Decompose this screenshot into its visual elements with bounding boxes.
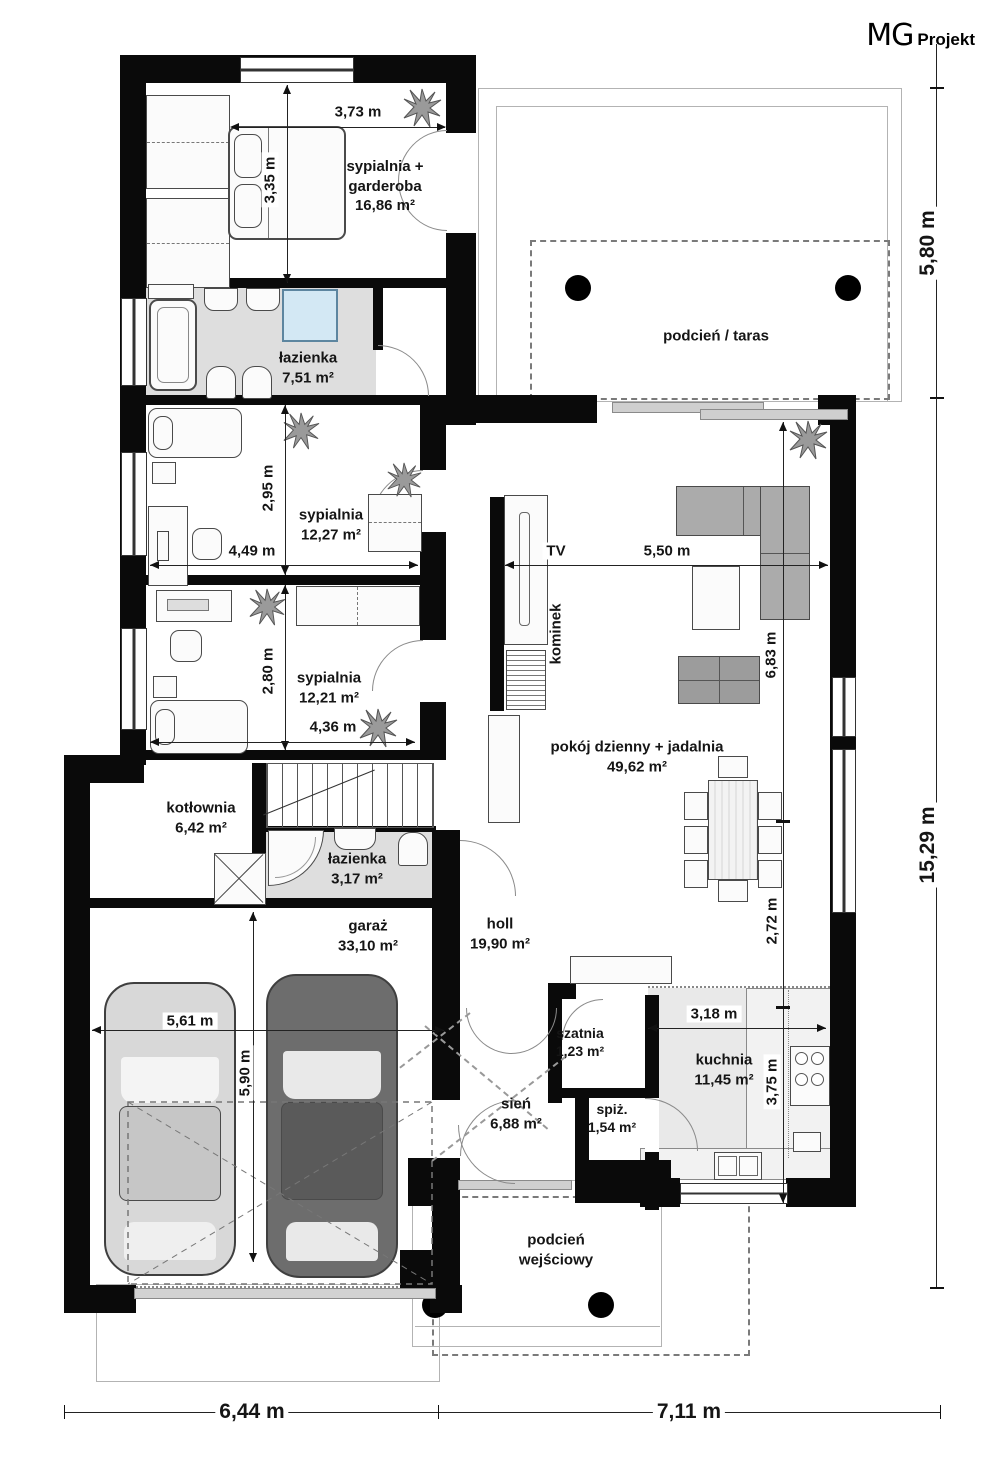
room-label-entrance-porch: podcień wejściowy bbox=[519, 1231, 593, 1270]
room-name: podcień / taras bbox=[663, 327, 769, 344]
dim-arrow bbox=[249, 912, 257, 921]
room-area: 12,21 m² bbox=[297, 688, 361, 708]
dim-arrow bbox=[435, 1026, 444, 1034]
stairs-break-line bbox=[263, 770, 375, 816]
sink-bowl bbox=[718, 1156, 737, 1176]
dim-label: 5,80 m bbox=[916, 206, 940, 279]
window bbox=[121, 452, 147, 556]
dim-label: 15,29 m bbox=[916, 802, 940, 887]
dim-tick bbox=[930, 397, 944, 399]
wardrobe-shelves bbox=[146, 198, 230, 288]
porch-step-line bbox=[415, 1326, 660, 1327]
room-name: garaż bbox=[338, 917, 398, 937]
room-area: 16,86 m² bbox=[346, 196, 423, 216]
sofa-seam bbox=[761, 553, 809, 554]
monitor bbox=[157, 531, 169, 561]
wall bbox=[432, 830, 460, 1285]
wall bbox=[556, 983, 576, 999]
dim-label: 7,11 m bbox=[653, 1400, 725, 1424]
room-name: sypialnia + bbox=[346, 157, 423, 177]
room-label-master-bedroom: sypialnia + garderoba 16,86 m² bbox=[346, 157, 423, 216]
plant-icon bbox=[386, 462, 422, 498]
tv-label: TV bbox=[542, 543, 569, 560]
bidet bbox=[242, 366, 272, 399]
room-area: 1,54 m² bbox=[588, 1118, 636, 1136]
dim-line bbox=[783, 422, 784, 1203]
dresser bbox=[156, 590, 232, 622]
entrance-door-panel bbox=[458, 1180, 572, 1190]
dim-arrow bbox=[406, 738, 415, 746]
dim-line bbox=[505, 565, 828, 566]
door-arc bbox=[460, 840, 516, 896]
room-name: holl bbox=[470, 915, 530, 935]
dim-arrow bbox=[779, 1194, 787, 1203]
dim-line bbox=[150, 742, 415, 743]
dim-arrow bbox=[505, 561, 514, 569]
room-name: sień bbox=[490, 1095, 542, 1115]
room-label-vestibule: sień 6,88 m² bbox=[490, 1095, 542, 1134]
nightstand bbox=[152, 462, 176, 484]
dim-line bbox=[285, 405, 286, 575]
tv-cabinet bbox=[678, 656, 760, 704]
brand-logo-mg: MG bbox=[866, 18, 913, 53]
dim-label: 6,83 m bbox=[763, 628, 780, 683]
room-label-hall: holl 19,90 m² bbox=[470, 915, 530, 954]
fireplace-label: kominek bbox=[546, 604, 566, 665]
dim-line bbox=[92, 1030, 444, 1031]
brand-logo-projekt: Projekt bbox=[917, 30, 975, 49]
counter-depth-line bbox=[788, 990, 789, 1158]
dim-arrow bbox=[281, 566, 289, 575]
window bbox=[121, 298, 147, 386]
hall-sideboard bbox=[570, 956, 672, 984]
wall bbox=[786, 1178, 856, 1207]
pillow bbox=[234, 184, 262, 228]
room-area: 7,51 m² bbox=[279, 368, 337, 388]
wall bbox=[490, 497, 504, 711]
terrace-roof-dashed bbox=[530, 240, 890, 400]
dim-line bbox=[648, 1028, 826, 1029]
room-name: wejściowy bbox=[519, 1250, 593, 1270]
wall bbox=[446, 55, 476, 133]
double-sink bbox=[714, 1152, 762, 1180]
wall bbox=[64, 1285, 136, 1313]
wall bbox=[64, 755, 90, 1290]
door-arc bbox=[466, 1008, 512, 1054]
room-name: podcień bbox=[519, 1231, 593, 1251]
room-area: 11,45 m² bbox=[694, 1070, 753, 1090]
hall-closet bbox=[488, 715, 520, 823]
room-area: 19,90 m² bbox=[470, 934, 530, 954]
window bbox=[680, 1183, 788, 1204]
cabinet-seam bbox=[679, 680, 759, 681]
dim-label: 3,35 m bbox=[262, 153, 279, 208]
dim-tick bbox=[438, 1405, 439, 1419]
dim-label: 2,72 m bbox=[764, 894, 781, 949]
dim-line bbox=[232, 127, 445, 128]
single-bed bbox=[150, 700, 248, 754]
dim-label: 5,50 m bbox=[640, 543, 695, 560]
dim-leader-line bbox=[936, 44, 937, 88]
dim-arrow bbox=[150, 738, 159, 746]
dim-arrow bbox=[437, 123, 446, 131]
room-label-bathroom-small: łazienka 3,17 m² bbox=[328, 850, 386, 889]
room-area: 6,88 m² bbox=[490, 1114, 542, 1134]
room-name: sypialnia bbox=[299, 506, 363, 526]
room-label-living-dining: pokój dzienny + jadalnia 49,62 m² bbox=[551, 738, 724, 777]
room-name: spiż. bbox=[588, 1100, 636, 1118]
shower bbox=[282, 289, 338, 342]
wall bbox=[440, 395, 597, 423]
dim-arrow bbox=[283, 85, 291, 94]
desk bbox=[148, 506, 188, 586]
dim-tick bbox=[930, 87, 944, 89]
porch-roof-dashed bbox=[432, 1196, 750, 1356]
burner bbox=[795, 1073, 808, 1086]
room-area: 6,42 m² bbox=[166, 818, 235, 838]
garage-door-swing-zone bbox=[126, 1100, 434, 1286]
room-label-cloakroom: szatnia 1,23 m² bbox=[556, 1024, 604, 1060]
dining-chair bbox=[684, 792, 708, 820]
dining-chair bbox=[758, 860, 782, 888]
room-name: garderoba bbox=[346, 176, 423, 196]
kitchen-open-boundary bbox=[648, 986, 830, 988]
single-bed bbox=[148, 408, 242, 458]
dim-line bbox=[150, 565, 418, 566]
shelf-line bbox=[147, 142, 229, 143]
room-label-kitchen: kuchnia 11,45 m² bbox=[694, 1051, 753, 1090]
dishwasher bbox=[793, 1132, 821, 1152]
room-name: kotłownia bbox=[166, 799, 235, 819]
dim-tick bbox=[64, 1405, 65, 1419]
toilet bbox=[206, 366, 236, 399]
car-windshield bbox=[121, 1057, 218, 1103]
toilet bbox=[398, 832, 428, 866]
burner bbox=[811, 1073, 824, 1086]
fireplace-slot bbox=[519, 512, 530, 626]
wall bbox=[560, 1088, 645, 1098]
sink bbox=[204, 288, 238, 311]
chair bbox=[170, 630, 202, 662]
dim-label: 3,75 m bbox=[764, 1055, 781, 1110]
dim-arrow bbox=[92, 1026, 101, 1034]
room-name: łazienka bbox=[279, 349, 337, 369]
room-label-bedroom-3: sypialnia 12,21 m² bbox=[297, 669, 361, 708]
sink bbox=[334, 828, 376, 850]
dim-label: 6,44 m bbox=[215, 1400, 288, 1424]
dim-tick bbox=[930, 1287, 944, 1289]
room-label-bedroom-2: sypialnia 12,27 m² bbox=[299, 506, 363, 545]
room-name: pokój dzienny + jadalnia bbox=[551, 738, 724, 758]
dim-arrow bbox=[230, 123, 239, 131]
fireplace bbox=[504, 495, 548, 645]
door-arc bbox=[372, 640, 423, 691]
sink-bowl bbox=[739, 1156, 758, 1176]
dining-chair bbox=[758, 792, 782, 820]
dim-label: 5,90 m bbox=[237, 1046, 254, 1101]
washing-machine bbox=[148, 284, 194, 299]
door-arc bbox=[378, 345, 429, 396]
boiler bbox=[214, 853, 266, 905]
sliding-door-panel bbox=[700, 409, 848, 420]
dining-table bbox=[708, 780, 758, 880]
dim-arrow bbox=[409, 561, 418, 569]
dining-chair bbox=[718, 880, 748, 902]
burner bbox=[795, 1052, 808, 1065]
plant-icon bbox=[402, 88, 442, 128]
room-label-pantry: spiż. 1,54 m² bbox=[588, 1100, 636, 1136]
tub-inner bbox=[157, 307, 189, 383]
room-label-garage: garaż 33,10 m² bbox=[338, 917, 398, 956]
bathtub bbox=[149, 299, 197, 391]
stove bbox=[790, 1046, 830, 1106]
dim-label: 3,18 m bbox=[687, 1006, 742, 1023]
room-name: kuchnia bbox=[694, 1051, 753, 1071]
dining-chair bbox=[684, 826, 708, 854]
window bbox=[240, 57, 354, 83]
room-name: łazienka bbox=[328, 850, 386, 870]
dim-tick bbox=[940, 1405, 941, 1419]
terrace-column-left bbox=[565, 275, 591, 301]
dim-label: 4,36 m bbox=[306, 719, 361, 736]
door-opening bbox=[420, 640, 446, 702]
chair bbox=[192, 528, 222, 560]
wardrobe bbox=[296, 586, 420, 626]
dim-label: 3,73 m bbox=[331, 104, 386, 121]
dim-divider bbox=[776, 1006, 790, 1009]
room-label-boiler-room: kotłownia 6,42 m² bbox=[166, 799, 235, 838]
dim-divider bbox=[776, 820, 790, 823]
corner-sofa-side bbox=[760, 486, 810, 620]
dim-label: 5,61 m bbox=[163, 1013, 218, 1030]
pillow bbox=[234, 134, 262, 178]
wall bbox=[373, 288, 383, 350]
dim-arrow bbox=[819, 561, 828, 569]
car-windshield bbox=[283, 1051, 380, 1099]
coffee-table bbox=[692, 566, 740, 630]
dim-line bbox=[285, 585, 286, 750]
dim-arrow bbox=[249, 1253, 257, 1262]
door-opening bbox=[420, 470, 446, 532]
stairs bbox=[266, 763, 434, 828]
dim-arrow bbox=[817, 1024, 826, 1032]
shelf-line bbox=[369, 522, 421, 523]
brand-logo: MGProjekt bbox=[845, 18, 975, 53]
dim-arrow bbox=[283, 274, 291, 283]
wall bbox=[146, 395, 446, 405]
dim-label: 2,80 m bbox=[260, 644, 277, 699]
room-name: sypialnia bbox=[297, 669, 361, 689]
dining-chair bbox=[684, 860, 708, 888]
window bbox=[832, 749, 856, 913]
room-area: 49,62 m² bbox=[551, 757, 724, 777]
dim-label: 2,95 m bbox=[260, 461, 277, 516]
shelf-line bbox=[357, 587, 358, 625]
room-area: 12,27 m² bbox=[299, 525, 363, 545]
wardrobe bbox=[368, 494, 422, 552]
garage-door-panel bbox=[134, 1288, 436, 1299]
room-area: 3,17 m² bbox=[328, 869, 386, 889]
pillow bbox=[153, 416, 173, 450]
wardrobe-shelves bbox=[146, 95, 230, 189]
terrace-column-right bbox=[835, 275, 861, 301]
plant-icon bbox=[788, 420, 828, 460]
porch-column-right bbox=[588, 1292, 614, 1318]
room-label-terrace: podcień / taras bbox=[663, 326, 769, 346]
dim-arrow bbox=[281, 405, 289, 414]
dim-arrow bbox=[779, 422, 787, 431]
dim-label: 4,49 m bbox=[225, 543, 280, 560]
room-name: szatnia bbox=[556, 1024, 604, 1042]
dim-arrow bbox=[281, 585, 289, 594]
dim-line bbox=[287, 85, 288, 283]
room-area: 1,23 m² bbox=[556, 1042, 604, 1060]
dresser-detail bbox=[167, 599, 209, 611]
wall bbox=[146, 575, 446, 585]
sofa-seam bbox=[743, 487, 744, 535]
dim-arrow bbox=[150, 561, 159, 569]
floor-plan: MGProjekt bbox=[0, 0, 995, 1466]
window bbox=[121, 628, 147, 730]
fireplace-grill bbox=[506, 650, 546, 710]
sink bbox=[246, 288, 280, 311]
shelf-line bbox=[147, 243, 229, 244]
room-label-bathroom-main: łazienka 7,51 m² bbox=[279, 349, 337, 388]
window bbox=[832, 677, 856, 737]
dining-chair bbox=[758, 826, 782, 854]
room-area: 33,10 m² bbox=[338, 936, 398, 956]
burner bbox=[811, 1052, 824, 1065]
dim-arrow bbox=[648, 1024, 657, 1032]
wall bbox=[640, 1178, 680, 1207]
plant-icon bbox=[282, 412, 320, 450]
nightstand bbox=[153, 676, 177, 698]
